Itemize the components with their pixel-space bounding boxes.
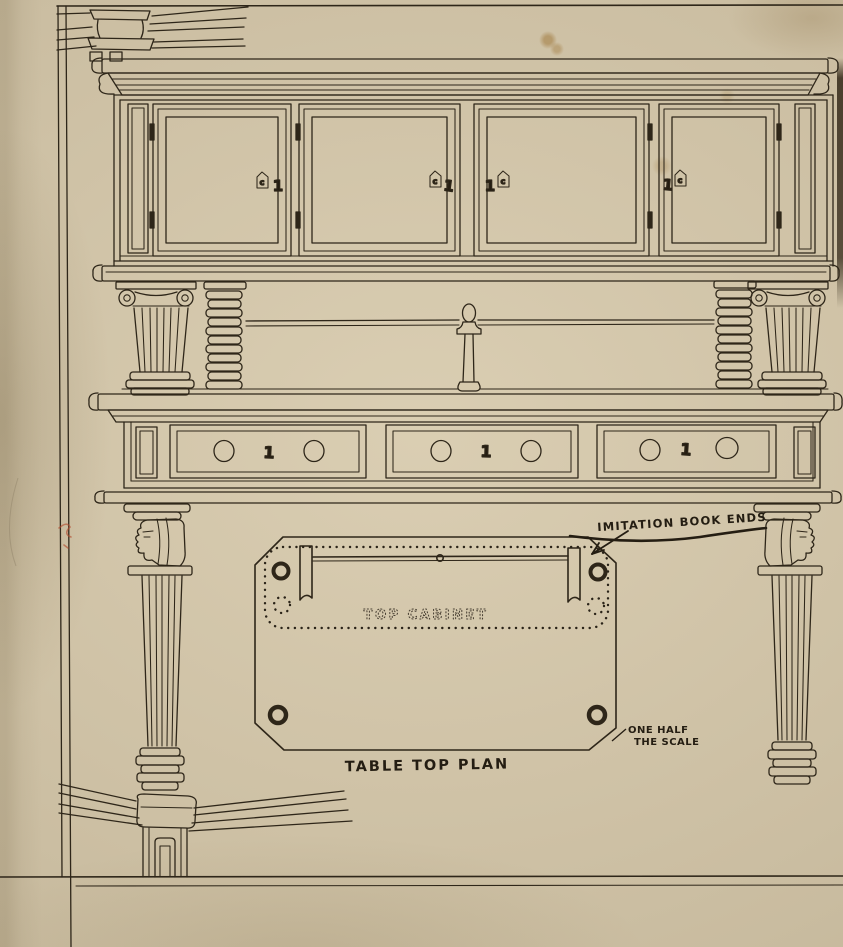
hinge-mark: [777, 212, 781, 228]
plan-post-ring: [589, 707, 605, 723]
label-table-top-plan: TABLE TOP PLAN: [345, 757, 510, 776]
carved-face: [765, 519, 814, 566]
upper-cabinet: c c c c 1 1 1 1: [92, 58, 839, 281]
drawer-knob: [521, 441, 541, 462]
escutcheon-letter: c: [433, 177, 438, 186]
right-pilaster-panel: [795, 104, 815, 253]
escutcheon-icon: c: [257, 172, 268, 188]
scanned-drawing-page: c c c c 1 1 1 1: [0, 0, 843, 947]
drawer-number: 1: [263, 443, 275, 463]
left-caryatid-leg: [124, 504, 192, 790]
plinth-corner-detail: [59, 784, 352, 877]
label-scale-line1: ONE HALF: [628, 725, 689, 736]
escutcheon-letter: c: [260, 178, 265, 187]
hinge-mark: [777, 124, 781, 140]
drawer-knob: [431, 441, 451, 462]
gallery-rail: [246, 320, 714, 326]
table-top: [89, 393, 842, 422]
label-top-cabinet: TOP CABINET: [364, 608, 488, 623]
cornice: [92, 58, 838, 95]
hinge-mark: [296, 124, 300, 140]
volute-icon: [177, 290, 193, 306]
right-turned-post: [714, 281, 756, 388]
door-key-number: 1: [662, 176, 674, 195]
table-top-plan-view: TOP CABINET: [255, 537, 616, 750]
drawer-knob: [304, 441, 324, 462]
sheet-border-lines: [0, 5, 843, 947]
plan-outline: [255, 537, 616, 750]
cornice-corner-detail: [57, 7, 248, 61]
escutcheon-letter: c: [678, 176, 683, 185]
page-edge-shadow: [837, 58, 843, 308]
escutcheon-icon: c: [675, 170, 686, 186]
plan-rail: [313, 556, 568, 557]
cabinet-door-1: [150, 104, 291, 256]
furniture-drawing: c c c c 1 1 1 1: [0, 0, 843, 947]
right-ionic-column: [748, 282, 828, 395]
hinge-mark: [150, 124, 154, 140]
scale-leader-line: [612, 729, 626, 741]
hinge-mark: [648, 212, 652, 228]
drawer-number: 1: [680, 440, 692, 460]
volute-icon: [751, 290, 767, 306]
escutcheon-icon: c: [498, 171, 509, 187]
plan-post-ring: [270, 707, 286, 723]
volute-icon: [119, 290, 135, 306]
drawer-1: 1: [170, 425, 366, 478]
escutcheon-icon: c: [430, 171, 441, 187]
drawer-knob: [716, 438, 738, 459]
annotations: IMITATION BOOK ENDS ONE HALF THE SCALE T…: [345, 510, 767, 776]
drawer-2: 1: [386, 425, 578, 478]
volute-icon: [809, 290, 825, 306]
plan-post-ring: [591, 565, 606, 580]
drawer-3: 1: [597, 425, 776, 478]
door-key-number: 1: [485, 177, 495, 195]
left-pilaster-panel: [128, 104, 148, 253]
label-scale-line2: THE SCALE: [634, 737, 700, 748]
drawer-number: 1: [480, 442, 492, 461]
left-ionic-column: [116, 282, 196, 395]
plan-post-ring: [274, 564, 289, 579]
drawer-knob: [214, 441, 234, 462]
right-end-panel: [794, 427, 815, 478]
left-turned-post: [204, 282, 246, 389]
lower-table: 1 1 1: [89, 393, 842, 503]
dotted-circle: [588, 598, 604, 614]
center-finial: [457, 304, 481, 391]
hinge-mark: [648, 124, 652, 140]
table-bottom-rail: [95, 491, 841, 503]
escutcheon-letter: c: [501, 177, 506, 186]
door-key-number: 1: [273, 177, 283, 195]
carved-face: [136, 519, 185, 566]
right-caryatid-leg: [754, 504, 822, 784]
arrow-to-book-end: [592, 531, 628, 554]
book-end-right: [568, 548, 580, 602]
door-key-number: 1: [442, 176, 455, 195]
pencil-stray-mark: [9, 478, 18, 566]
cabinet-base-shelf: [93, 265, 839, 281]
dotted-circle: [274, 597, 290, 613]
drawer-knob: [640, 440, 660, 461]
door-escutcheons: c c c c 1 1 1 1: [257, 170, 686, 196]
book-end-left: [300, 546, 312, 600]
hinge-mark: [150, 212, 154, 228]
left-end-panel: [136, 427, 157, 478]
middle-gallery: [116, 281, 828, 395]
hinge-mark: [296, 212, 300, 228]
